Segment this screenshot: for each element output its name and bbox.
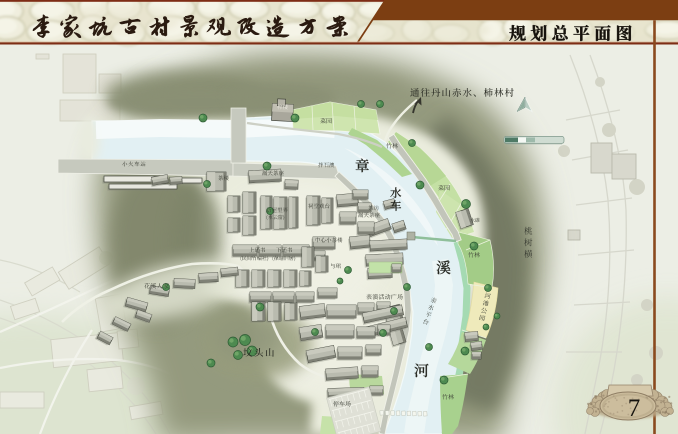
- svg-text:7: 7: [628, 395, 641, 422]
